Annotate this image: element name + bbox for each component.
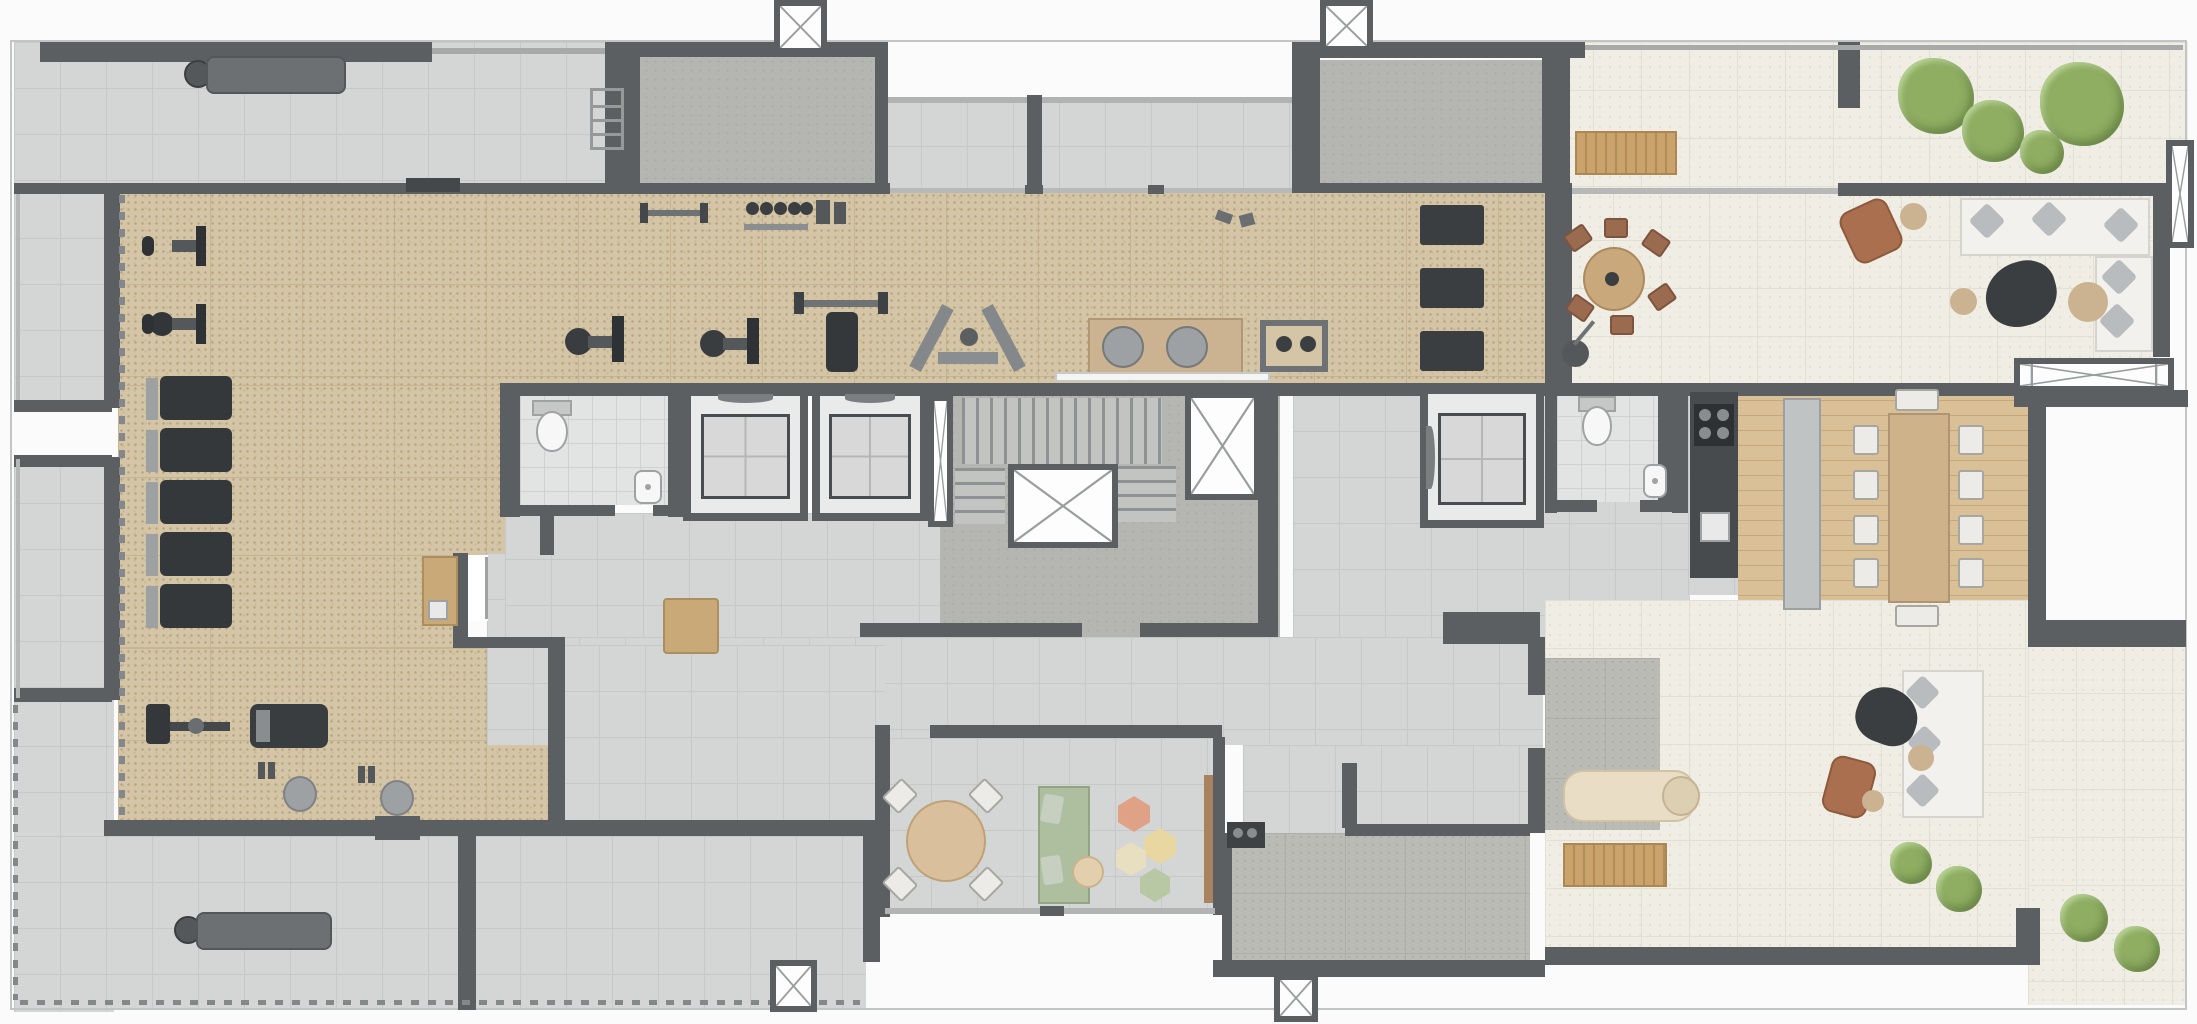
wall-bath2-south-2 bbox=[1640, 500, 1672, 512]
side-table bbox=[1072, 856, 1104, 888]
wall-bath1-west bbox=[500, 383, 520, 517]
wall-gym-lobby-stub bbox=[540, 505, 554, 555]
wood-chair-2 bbox=[1604, 218, 1628, 238]
green-sofa-pillow-2 bbox=[1040, 855, 1064, 886]
toilet-bathroom-2-bowl bbox=[1582, 406, 1612, 446]
mullion-lounge bbox=[1040, 906, 1064, 916]
toilet-bathroom-2 bbox=[1578, 396, 1612, 442]
corridor-console bbox=[663, 598, 719, 654]
gym-bike-4-bar bbox=[747, 318, 759, 364]
gym-bike-1-seat bbox=[142, 236, 154, 256]
elevator-3-car bbox=[1438, 413, 1527, 505]
wall-room-a-right bbox=[875, 57, 888, 192]
burner-1 bbox=[1699, 409, 1711, 421]
pouf-tr-3 bbox=[2068, 282, 2108, 322]
wall-lounge-north bbox=[930, 725, 1222, 738]
gym-bench-4 bbox=[160, 532, 232, 576]
parapet-top-right bbox=[1585, 45, 2183, 50]
elevator-1 bbox=[683, 388, 808, 521]
gym-bench-4-bar bbox=[146, 534, 158, 576]
terrace-planter bbox=[406, 178, 460, 192]
exercise-ball-1 bbox=[283, 776, 317, 812]
grill-knob-1 bbox=[1233, 828, 1243, 838]
wall-terrace-bl-north bbox=[104, 820, 866, 836]
bench-press-bar bbox=[798, 300, 884, 307]
pouf-tr-1 bbox=[1900, 203, 1927, 230]
plant-tr-2 bbox=[1962, 100, 2024, 162]
elevator-3 bbox=[1420, 386, 1544, 528]
wall-stone-north bbox=[1345, 824, 1530, 836]
gym-bench-3 bbox=[160, 480, 232, 524]
plant-br-2 bbox=[1936, 866, 1982, 912]
dining-chair-2 bbox=[1853, 470, 1879, 500]
wall-lobby-east-1 bbox=[1528, 637, 1545, 695]
mullion-2 bbox=[1148, 185, 1164, 194]
wall-dining-corner bbox=[2028, 620, 2186, 647]
floor-plan-canvas bbox=[0, 0, 2197, 1024]
bench-press-plate-r bbox=[878, 292, 888, 314]
kitchen-sink bbox=[1700, 512, 1730, 542]
medicine-ball-1 bbox=[1102, 326, 1144, 368]
wall-terrace-br-inner bbox=[1545, 947, 2023, 965]
parapet-balcony2 bbox=[16, 459, 20, 698]
rowing-machine-seat bbox=[188, 718, 204, 734]
cable-pulley-1 bbox=[1276, 336, 1292, 352]
wall-terrace-br-step bbox=[2016, 908, 2040, 965]
elevator-2-car bbox=[829, 414, 911, 499]
shaft-core-big bbox=[1185, 392, 1260, 500]
shaft-core-duct bbox=[928, 395, 953, 527]
burner-2 bbox=[1717, 409, 1729, 421]
shaft-stair-void bbox=[1008, 464, 1118, 548]
barbell-icon-plate-r bbox=[700, 203, 708, 223]
dining-chair-1 bbox=[1853, 425, 1879, 455]
wall-stone-nw bbox=[1342, 763, 1357, 828]
squat-rack-cross bbox=[938, 352, 998, 364]
wall-terrace-divider bbox=[458, 836, 476, 1010]
dining-chair-5 bbox=[1958, 425, 1984, 455]
gym-bench-1-bar bbox=[146, 378, 158, 420]
wall-lobby-corner bbox=[1443, 612, 1540, 644]
bench-press-bench bbox=[826, 312, 858, 372]
gym-bike-3-bar bbox=[612, 316, 624, 362]
plant-br-1 bbox=[1890, 842, 1932, 884]
wall-gym-east bbox=[548, 648, 565, 828]
sink-bathroom-2-drain bbox=[1652, 478, 1658, 484]
pier-balcony bbox=[1027, 95, 1042, 192]
stair-flight-right bbox=[1118, 466, 1176, 522]
gym-bench-2-bar bbox=[146, 430, 158, 472]
railing-bl bbox=[20, 1000, 860, 1005]
wall-lounge-right-north bbox=[1838, 183, 2170, 196]
pouf-tr-2 bbox=[1950, 288, 1977, 315]
dumbbell-pair-2a bbox=[358, 766, 365, 783]
wall-lobby-east-2 bbox=[1528, 748, 1545, 833]
wall-kitchen-west bbox=[1672, 383, 1688, 513]
leg-machine-roller bbox=[256, 710, 270, 742]
barbell-icon-bar bbox=[648, 210, 700, 216]
railing-left bbox=[13, 705, 18, 1000]
gym-bench-3-bar bbox=[146, 482, 158, 524]
glass-lounge-right-west bbox=[1572, 188, 1838, 194]
stair-flight-left bbox=[955, 468, 1005, 524]
pier-top-right bbox=[1838, 42, 1860, 108]
rowing-machine-head bbox=[146, 704, 170, 744]
wall-dining-east bbox=[2028, 383, 2046, 647]
wall-vestibule-south bbox=[453, 637, 565, 648]
kettlebell-1 bbox=[746, 202, 759, 215]
dumbbell-pair-2b bbox=[368, 766, 375, 783]
wall-balcony1-south bbox=[14, 400, 112, 412]
gym-bench-5 bbox=[160, 584, 232, 628]
gym-bike-2-bar bbox=[196, 304, 206, 344]
gym-bike-2-seat bbox=[142, 314, 154, 334]
plate-rack-2 bbox=[834, 202, 846, 224]
wall-bath1-south-2 bbox=[653, 505, 668, 516]
squat-rack-seat bbox=[960, 328, 978, 346]
glass-balcony-top bbox=[888, 97, 1292, 103]
kitchen-island bbox=[1783, 398, 1821, 610]
plant-br-3 bbox=[2060, 894, 2108, 942]
sunlounger-top-left bbox=[206, 56, 346, 94]
wood-chair-5 bbox=[1610, 315, 1634, 335]
sink-bathroom-2 bbox=[1643, 464, 1667, 498]
wall-west-lower bbox=[104, 457, 120, 700]
elevator-2-door bbox=[845, 394, 895, 403]
wall-chunk-bl bbox=[375, 816, 420, 840]
dining-chair-head-1 bbox=[1895, 389, 1939, 411]
dining-chair-4 bbox=[1853, 558, 1879, 588]
plant-tr-4 bbox=[2020, 130, 2064, 174]
ball-rack-ledge bbox=[1055, 372, 1270, 382]
grill-knob-2 bbox=[1247, 828, 1257, 838]
wall-balcony2-south bbox=[14, 688, 112, 702]
shaft-duct-right bbox=[2014, 358, 2174, 392]
bench-press-plate-l bbox=[794, 292, 804, 314]
wall-ladder-rung bbox=[593, 105, 621, 108]
pouf-br-2 bbox=[1862, 790, 1884, 812]
shaft-bottom-1 bbox=[770, 960, 817, 1012]
glass-gym-balcony bbox=[890, 188, 1292, 193]
cable-pulley-2 bbox=[1300, 336, 1316, 352]
round-table-lounge bbox=[906, 800, 986, 882]
toilet-bathroom-1 bbox=[532, 400, 568, 448]
plate-rack-1 bbox=[816, 200, 830, 224]
dining-chair-8 bbox=[1958, 558, 1984, 588]
kettlebell-rack bbox=[744, 224, 808, 230]
elevator-3-door bbox=[1426, 426, 1435, 489]
dining-chair-head-2 bbox=[1895, 605, 1939, 627]
gym-bench-1 bbox=[160, 376, 232, 420]
wall-room-a-top bbox=[607, 42, 888, 57]
wall-gym-north-east bbox=[1292, 183, 1572, 193]
elevator-1-door bbox=[718, 394, 773, 403]
parapet-balcony1 bbox=[16, 194, 20, 400]
wall-ladder-rung bbox=[593, 119, 621, 122]
dining-chair-3 bbox=[1853, 515, 1879, 545]
sunbed-wood-bottom bbox=[1563, 843, 1667, 887]
dining-table bbox=[1888, 413, 1950, 603]
parapet-top-left bbox=[432, 48, 610, 54]
gym-bench-2 bbox=[160, 428, 232, 472]
burner-4 bbox=[1717, 427, 1729, 439]
dining-chair-7 bbox=[1958, 515, 1984, 545]
dumbbell-pair-1a bbox=[258, 762, 265, 779]
wall-core-east bbox=[1258, 392, 1278, 637]
exercise-ball-2 bbox=[380, 780, 414, 816]
gym-bench-5-bar bbox=[146, 586, 158, 628]
gym-bike-1-frame bbox=[172, 240, 198, 252]
stair-flight-top bbox=[962, 398, 1162, 464]
gym-bike-1-bar bbox=[196, 226, 206, 266]
shaft-bottom-2 bbox=[1274, 974, 1318, 1022]
sink-bathroom-1 bbox=[634, 470, 662, 504]
dumbbell-pair-1b bbox=[268, 762, 275, 779]
wall-balcony-right bbox=[1292, 42, 1320, 192]
table-vase bbox=[1605, 272, 1619, 286]
wall-bath2-west bbox=[1545, 383, 1557, 513]
wall-ladder bbox=[590, 88, 624, 150]
burner-3 bbox=[1699, 427, 1711, 439]
glass-gym-west bbox=[119, 195, 125, 823]
elevator-2 bbox=[812, 388, 928, 521]
plant-br-4 bbox=[2114, 926, 2160, 972]
wall-stair-south-2 bbox=[1140, 623, 1275, 637]
toilet-bathroom-1-bowl bbox=[536, 411, 567, 452]
kettlebell-3 bbox=[774, 202, 787, 215]
shaft-top-1 bbox=[774, 0, 827, 54]
gym-bike-2-frame bbox=[172, 318, 198, 330]
yoga-mat-3 bbox=[1420, 331, 1484, 371]
wall-bath2-south-1 bbox=[1545, 500, 1597, 512]
gym-cabinet-sink bbox=[428, 600, 448, 620]
kettlebell-2 bbox=[760, 202, 773, 215]
door-gym-leaf bbox=[485, 557, 488, 619]
door-wood-lounge bbox=[1204, 775, 1213, 903]
shaft-top-2 bbox=[1320, 0, 1373, 52]
yoga-mat-1 bbox=[1420, 205, 1484, 245]
chaise-bolster bbox=[1662, 776, 1700, 816]
wall-stone-south bbox=[1213, 960, 1545, 977]
wall-ladder-rung bbox=[593, 133, 621, 136]
wall-bath1-south-1 bbox=[500, 505, 615, 516]
mullion-1 bbox=[1025, 185, 1043, 194]
sink-bathroom-1-drain bbox=[645, 484, 651, 490]
wall-west-upper bbox=[104, 183, 120, 408]
barbell-icon-plate-l bbox=[640, 203, 648, 223]
kettlebell-5 bbox=[800, 202, 813, 215]
medicine-ball-2 bbox=[1166, 326, 1208, 368]
dining-chair-6 bbox=[1958, 470, 1984, 500]
elevator-1-car bbox=[701, 414, 790, 499]
wall-stone-west bbox=[1222, 833, 1232, 963]
wall-stair-south-1 bbox=[860, 623, 1082, 637]
wall-room-b-right bbox=[1542, 42, 1570, 192]
sunlounger-bottom-left bbox=[196, 912, 332, 950]
yoga-mat-2 bbox=[1420, 268, 1484, 308]
shaft-right-edge bbox=[2166, 140, 2194, 248]
sunbed-wood-top bbox=[1575, 131, 1677, 175]
wall-balcony2-north bbox=[14, 455, 112, 467]
pouf-br-1 bbox=[1908, 745, 1934, 771]
